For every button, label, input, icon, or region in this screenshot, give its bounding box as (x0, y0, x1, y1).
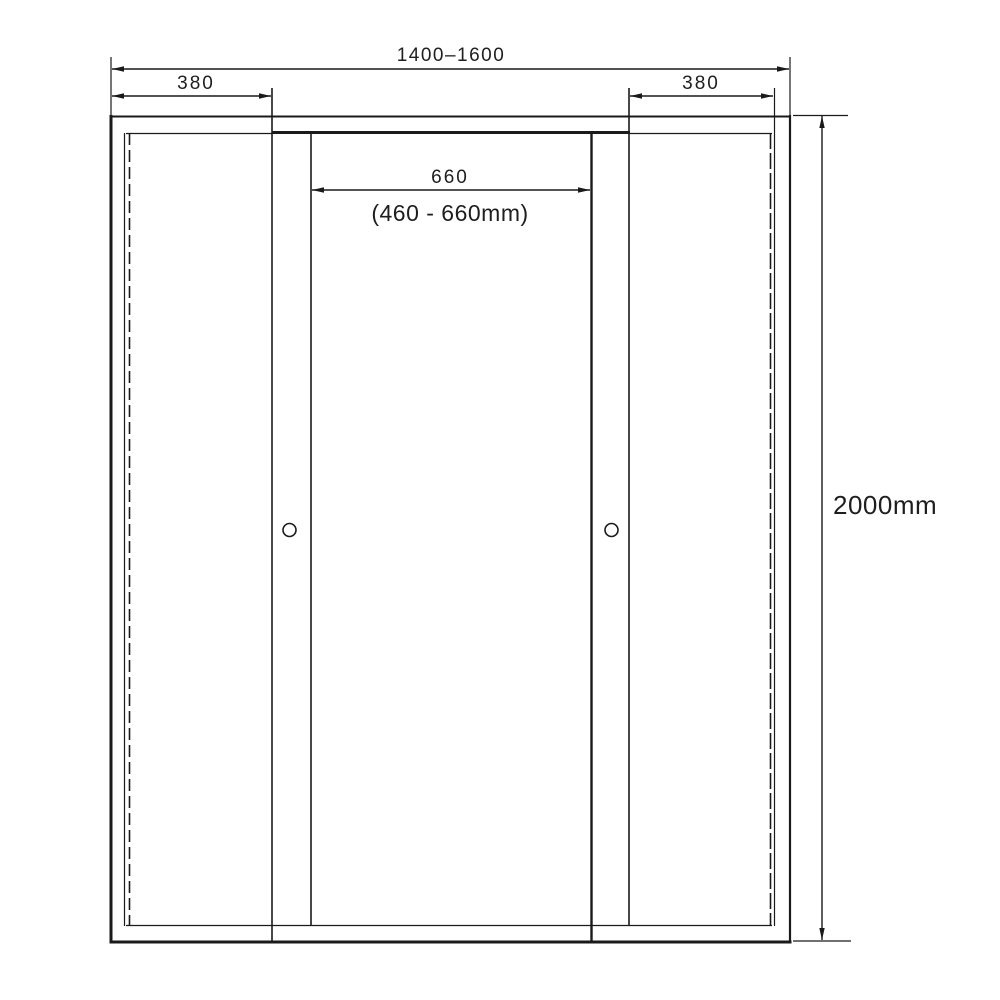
left-panel-width-label: 380 (177, 74, 215, 95)
opening-range-label: (460 - 660mm) (371, 201, 528, 226)
overall-width-label: 1400–1600 (397, 46, 506, 67)
right-panel-width-label: 380 (682, 74, 720, 95)
height-arrow-down-icon (819, 928, 824, 940)
door-knob-left (283, 524, 296, 537)
sliding-door-dimension-drawing: 1400–1600 380 380 660 (460 - 660mm) 2000… (0, 0, 1000, 1000)
overall-width-arrow-left-icon (112, 66, 124, 71)
right-panel-width-arrow-left-icon (630, 93, 642, 98)
door-knob-right (605, 524, 618, 537)
left-panel-width-arrow-right-icon (259, 93, 271, 98)
left-panel-width-arrow-left-icon (112, 93, 124, 98)
opening-width-label: 660 (431, 168, 469, 189)
overall-width-arrow-right-icon (777, 66, 789, 71)
right-panel-width-arrow-right-icon (761, 93, 773, 98)
opening-width-arrow-left-icon (312, 187, 324, 192)
height-arrow-up-icon (819, 116, 824, 128)
opening-width-arrow-right-icon (578, 187, 590, 192)
overall-height-label: 2000mm (833, 491, 937, 520)
